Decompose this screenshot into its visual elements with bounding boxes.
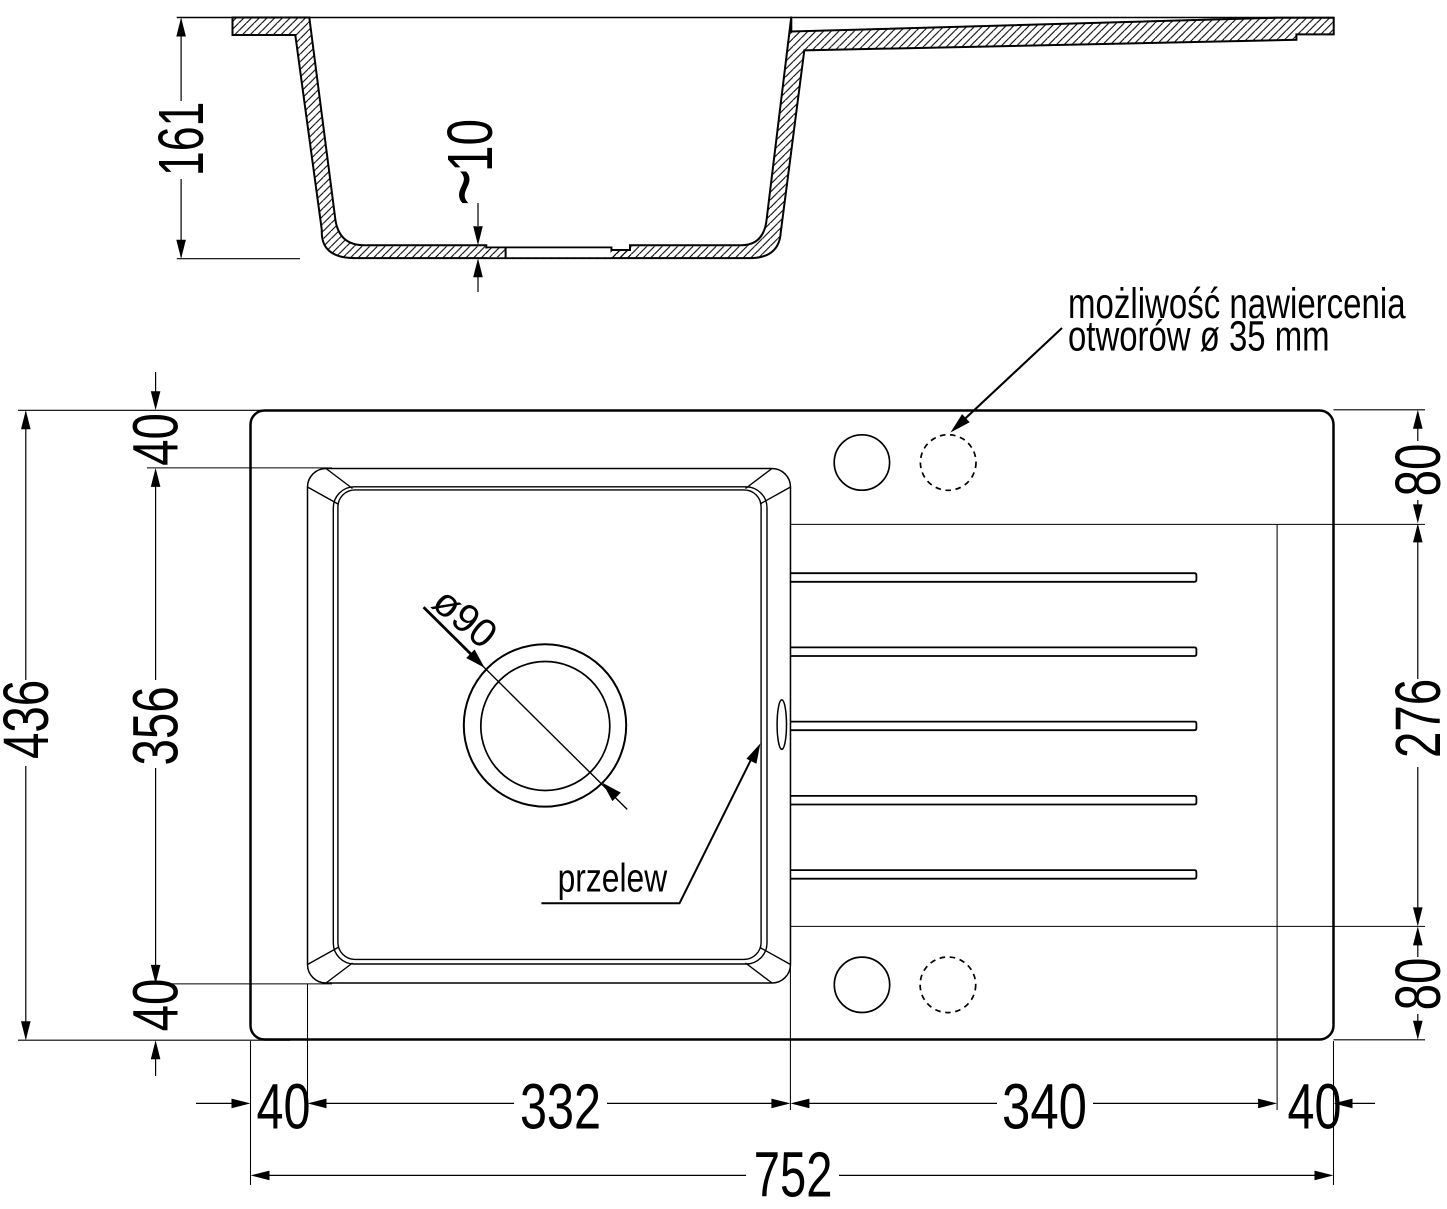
svg-text:otworów ø 35 mm: otworów ø 35 mm xyxy=(1068,312,1330,360)
svg-text:80: 80 xyxy=(1382,444,1447,497)
svg-text:752: 752 xyxy=(754,1138,833,1209)
svg-text:przelew: przelew xyxy=(558,856,668,900)
svg-text:~: ~ xyxy=(417,169,510,206)
svg-text:276: 276 xyxy=(1382,679,1447,758)
svg-text:161: 161 xyxy=(145,102,217,176)
svg-text:332: 332 xyxy=(520,1070,601,1142)
svg-text:356: 356 xyxy=(120,686,192,765)
svg-text:40: 40 xyxy=(120,413,192,466)
svg-text:80: 80 xyxy=(1382,958,1447,1011)
svg-text:436: 436 xyxy=(0,680,62,759)
svg-text:40: 40 xyxy=(1288,1070,1342,1142)
svg-text:40: 40 xyxy=(120,979,192,1032)
svg-text:40: 40 xyxy=(257,1070,311,1142)
svg-text:340: 340 xyxy=(1002,1070,1087,1142)
svg-text:10: 10 xyxy=(434,119,506,172)
